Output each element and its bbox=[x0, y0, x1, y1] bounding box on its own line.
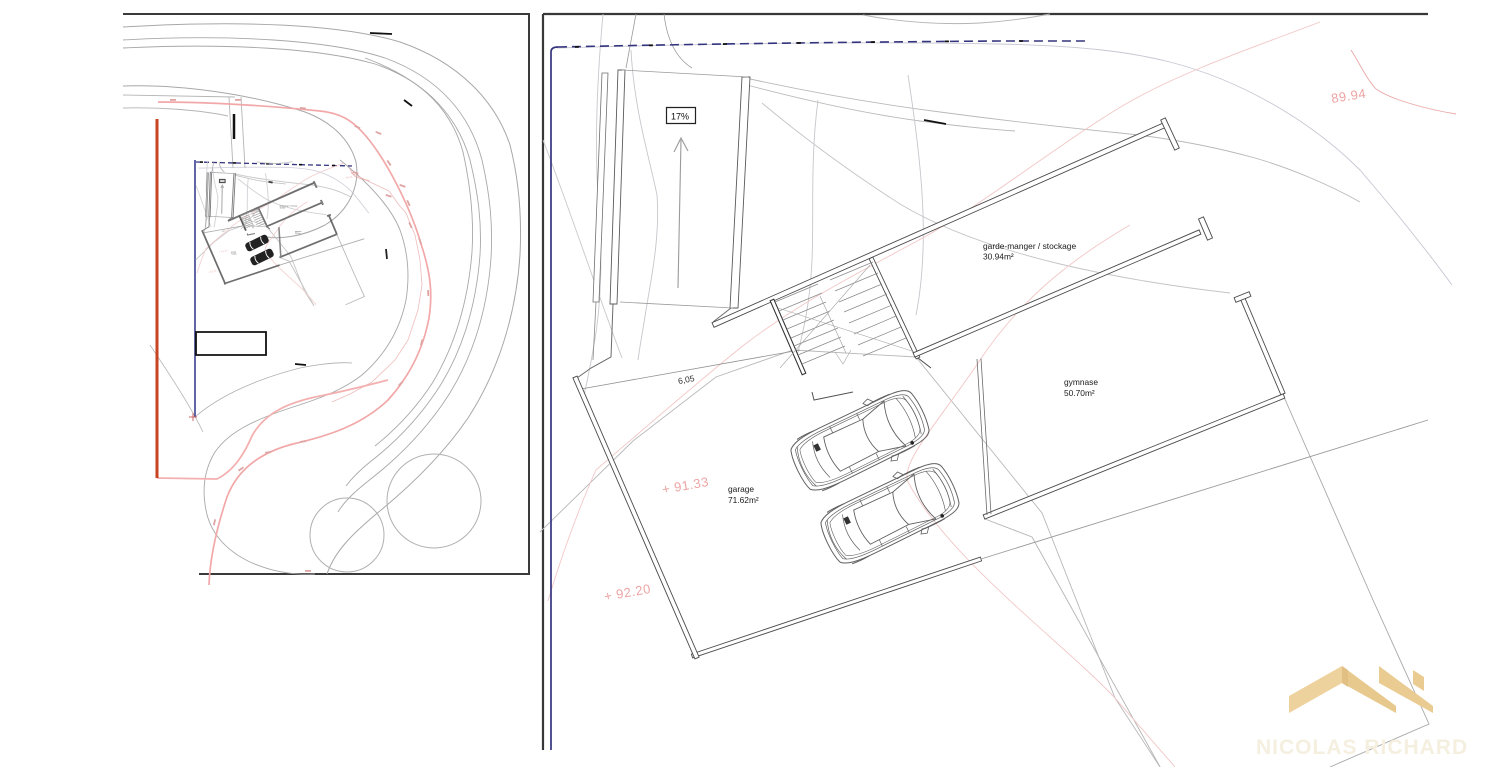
svg-text:NICOLAS RICHARD: NICOLAS RICHARD bbox=[1256, 736, 1468, 759]
